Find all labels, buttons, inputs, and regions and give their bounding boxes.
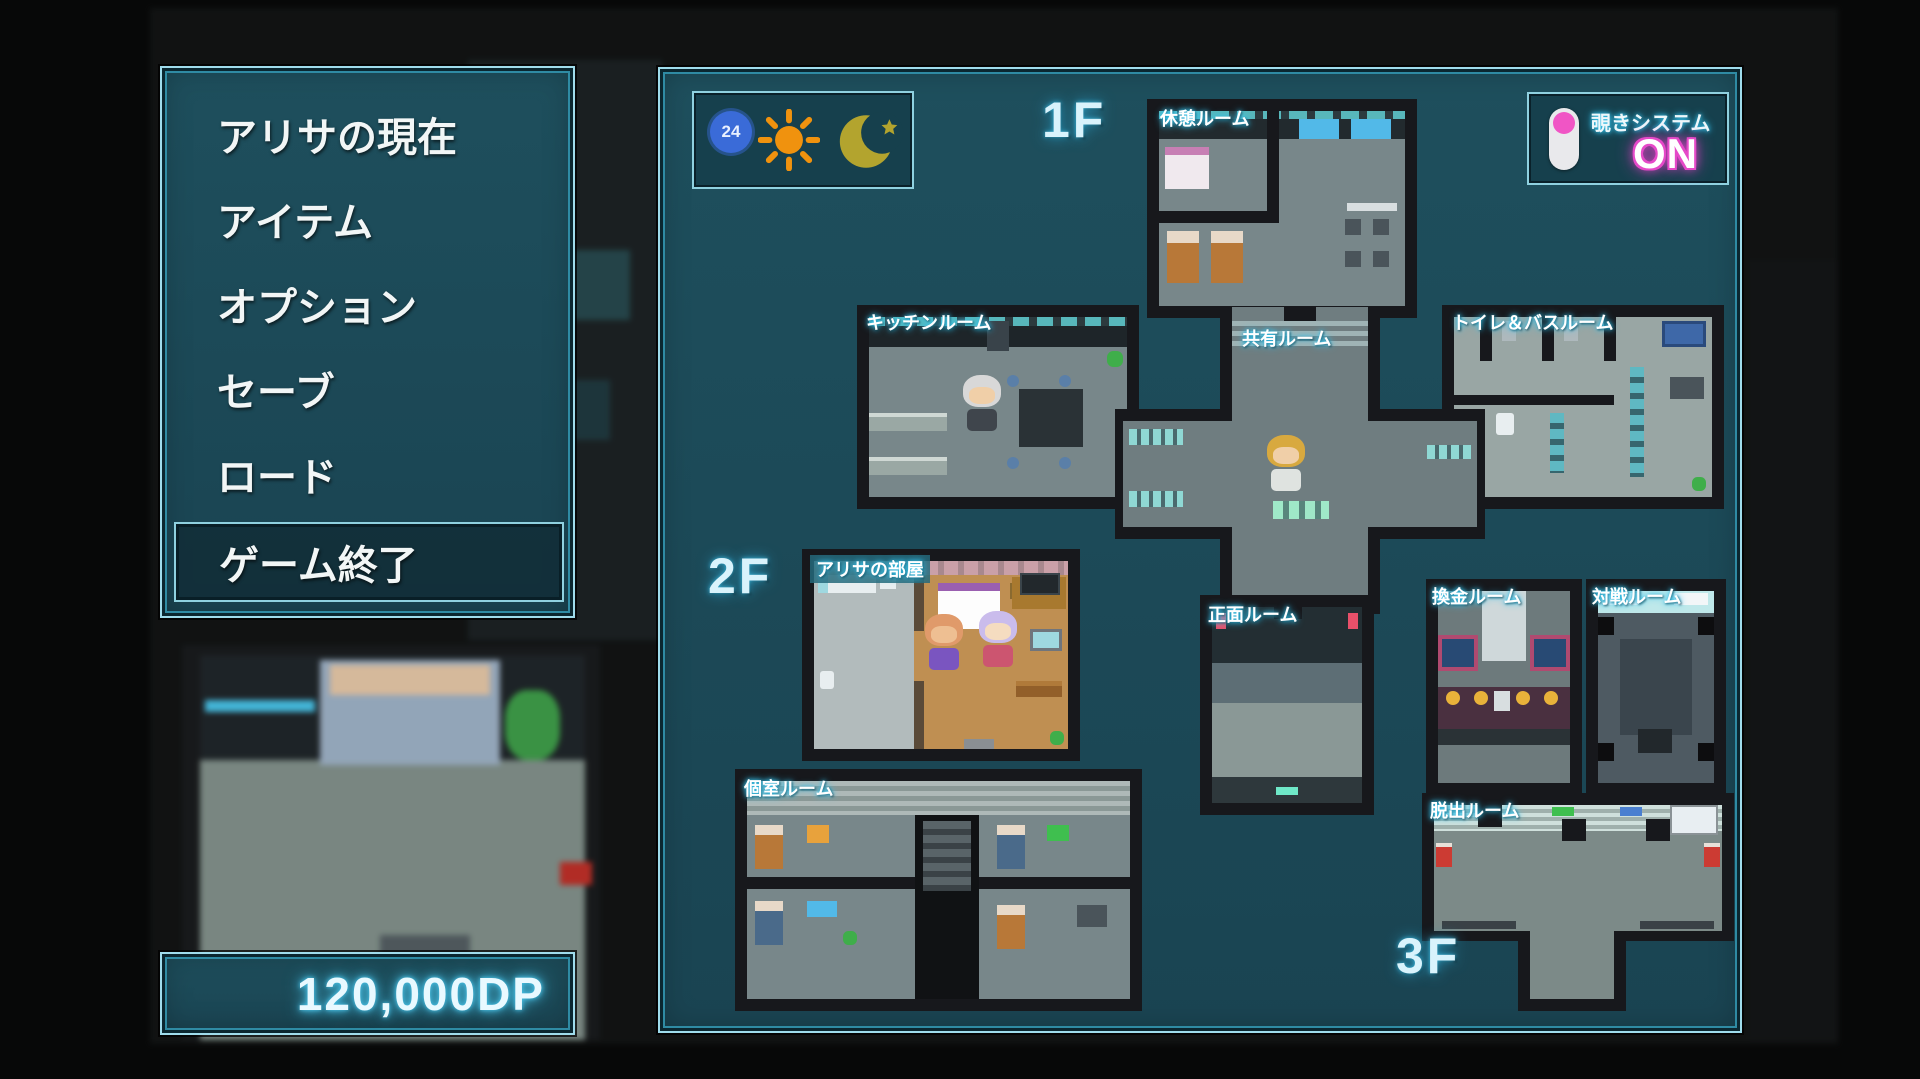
menu-item-quit-game[interactable]: ゲーム終了 <box>219 533 418 591</box>
time-of-day-box[interactable]: 24 <box>692 91 914 189</box>
room-label-kitchen: キッチンルーム <box>866 309 991 335</box>
room-label-front: 正面ルーム <box>1208 601 1297 627</box>
menu-selection-box[interactable]: ゲーム終了 <box>174 522 564 602</box>
dp-amount: 120,000DP <box>297 967 545 1021</box>
sun-icon <box>758 109 820 171</box>
dp-counter-panel: 120,000DP <box>160 952 575 1035</box>
clock-24-text: 24 <box>722 122 741 142</box>
room-label-battle: 対戦ルーム <box>1592 583 1681 609</box>
floor-label-3f: 3F <box>1396 927 1460 985</box>
room-label-exchange: 換金ルーム <box>1432 583 1521 609</box>
blonde-player-sprite <box>1264 435 1308 493</box>
bg-block <box>205 700 315 712</box>
old-man-sprite <box>960 375 1004 433</box>
alisa-girl-sprite <box>976 611 1020 669</box>
menu-item-items[interactable]: アイテム <box>217 190 373 248</box>
room-label-rest: 休憩ルーム <box>1160 105 1249 131</box>
bg-plant <box>505 690 560 760</box>
floor-label-2f: 2F <box>708 547 772 605</box>
bg-block <box>560 862 592 885</box>
peek-toggle-knob <box>1553 112 1575 134</box>
room-label-toilet-bath: トイレ＆バスルーム <box>1452 309 1613 335</box>
floor-label-1f: 1F <box>1042 91 1106 149</box>
menu-item-load[interactable]: ロード <box>217 445 337 503</box>
pause-menu-panel: アリサの現在 アイテム オプション セーブ ロード ゲーム終了 <box>160 66 575 618</box>
room-label-private: 個室ルーム <box>744 775 833 801</box>
room-label-alisa: アリサの部屋 <box>810 555 930 583</box>
moon-star-icon <box>834 105 904 175</box>
menu-item-alisa-status[interactable]: アリサの現在 <box>217 105 457 163</box>
menu-item-save[interactable]: セーブ <box>217 360 335 418</box>
room-label-shared: 共有ルーム <box>1242 325 1331 351</box>
peek-toggle[interactable] <box>1549 108 1579 170</box>
room-label-escape: 脱出ルーム <box>1430 797 1519 823</box>
facility-map-panel: 24 1F 2F 3F 覗きシステム ON <box>658 67 1742 1033</box>
bg-bed-pillow <box>330 665 490 695</box>
bald-man-sprite <box>922 614 966 672</box>
menu-item-options[interactable]: オプション <box>217 275 417 333</box>
peek-system-box: 覗きシステム ON <box>1527 92 1729 185</box>
bg-block <box>1748 260 1838 1040</box>
peek-system-state: ON <box>1633 130 1698 178</box>
24-hour-clock-icon: 24 <box>710 111 752 153</box>
